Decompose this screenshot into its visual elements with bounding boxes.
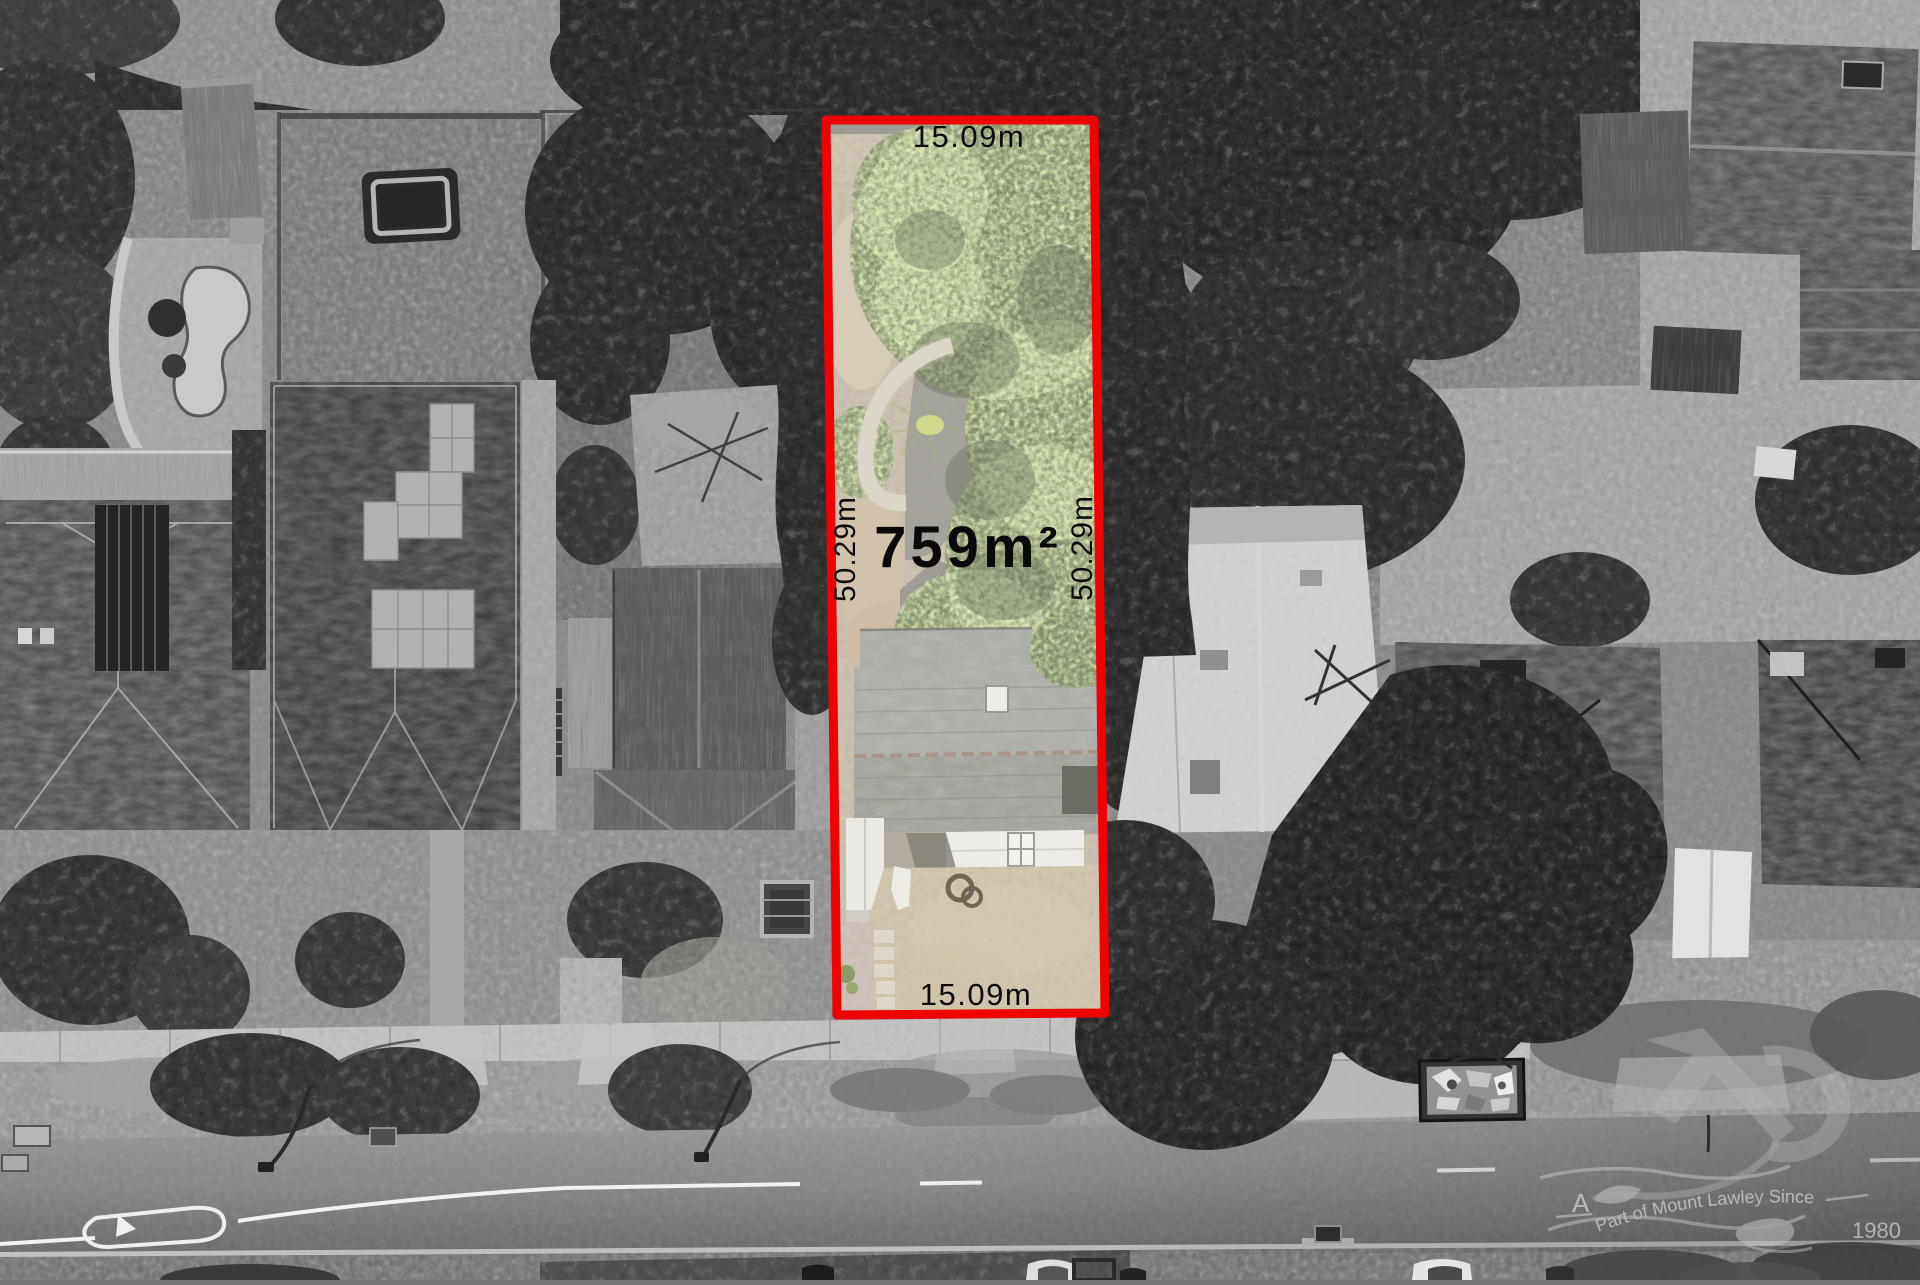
svg-text:759m²: 759m² bbox=[874, 515, 1062, 580]
svg-text:15.09m: 15.09m bbox=[920, 977, 1032, 1012]
svg-text:15.09m: 15.09m bbox=[913, 119, 1025, 154]
svg-text:1980: 1980 bbox=[1852, 1218, 1901, 1243]
svg-text:50.29m: 50.29m bbox=[829, 496, 862, 602]
svg-text:50.29m: 50.29m bbox=[1066, 495, 1099, 601]
